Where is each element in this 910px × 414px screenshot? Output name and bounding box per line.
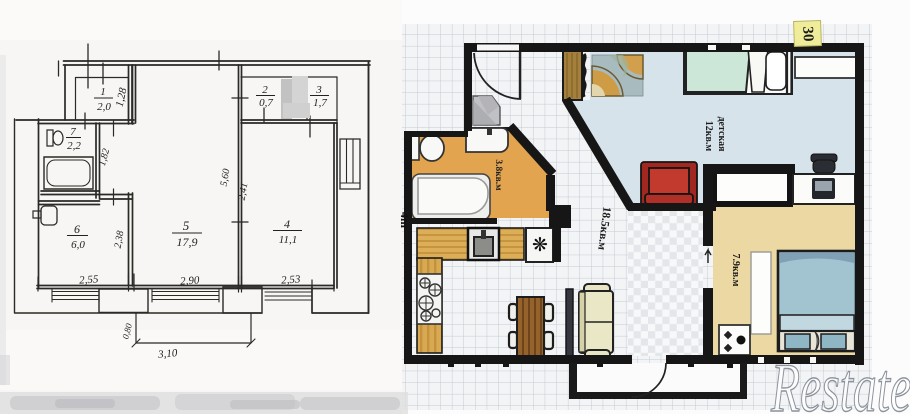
svg-text:17,9: 17,9 [177,235,198,249]
svg-text:2,0: 2,0 [97,101,111,113]
svg-text:1,7: 1,7 [313,97,327,109]
svg-text:2,2: 2,2 [67,140,81,152]
svg-text:1: 1 [100,86,106,98]
svg-text:2,53: 2,53 [281,273,302,286]
svg-text:3.8кв.м: 3.8кв.м [493,159,503,191]
svg-text:2,90: 2,90 [180,274,201,287]
svg-text:30: 30 [799,26,816,42]
svg-text:11,1: 11,1 [279,234,297,246]
svg-text:2,55: 2,55 [79,273,100,286]
svg-text:3: 3 [315,84,322,96]
svg-text:3,10: 3,10 [157,347,179,361]
svg-text:7: 7 [70,126,76,138]
svg-text:Restate: Restate [770,349,910,414]
svg-text:0,7: 0,7 [259,97,273,109]
svg-text:детская: детская [716,117,727,153]
svg-text:12кв.м: 12кв.м [703,121,714,152]
svg-text:2: 2 [262,84,268,96]
svg-text:4m: 4m [398,212,412,228]
svg-text:❋: ❋ [532,235,548,256]
svg-text:5: 5 [183,218,190,233]
svg-text:6: 6 [74,222,80,236]
svg-text:4: 4 [284,217,290,231]
svg-text:6,0: 6,0 [71,239,85,251]
svg-text:7.9кв.м: 7.9кв.м [730,254,741,287]
